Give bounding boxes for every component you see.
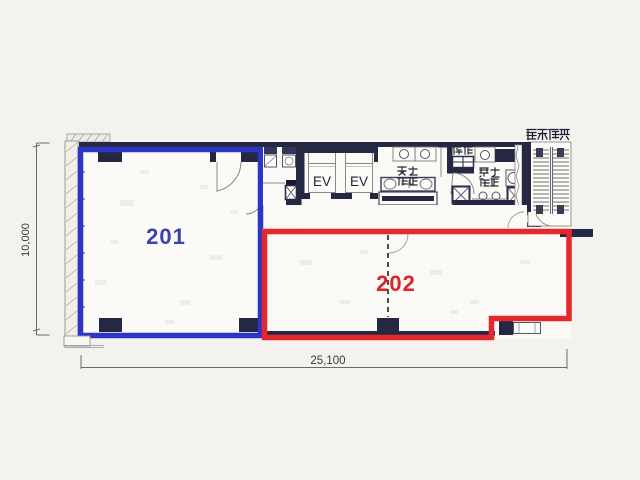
svg-text:202: 202 — [376, 271, 416, 296]
svg-text:EV: EV — [313, 174, 331, 189]
svg-text:25,100: 25,100 — [310, 355, 345, 367]
svg-text:10,000: 10,000 — [20, 223, 32, 257]
svg-text:EV: EV — [350, 174, 368, 189]
svg-text:201: 201 — [146, 224, 186, 249]
